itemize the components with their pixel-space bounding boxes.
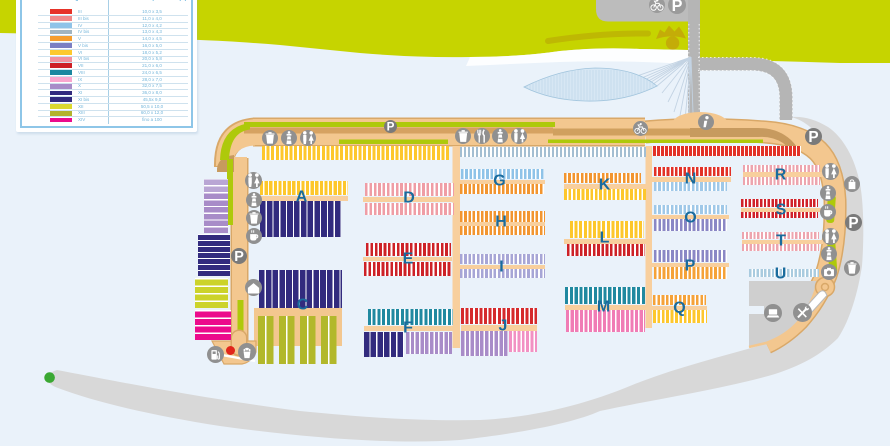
svg-text:P: P: [848, 214, 858, 230]
svg-text:P: P: [808, 128, 818, 144]
svg-text:P: P: [386, 121, 394, 133]
svg-text:P: P: [234, 249, 244, 264]
svg-text:P: P: [672, 0, 683, 14]
